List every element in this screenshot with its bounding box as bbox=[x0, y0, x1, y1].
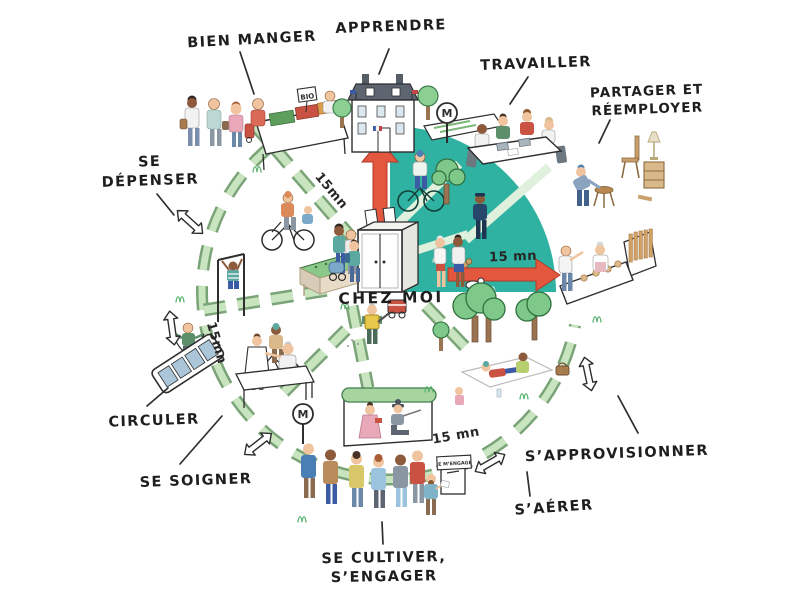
label-se-depenser-line2: DÉPENSER bbox=[101, 170, 199, 192]
label-se-cultiver-line2: S’ENGAGER bbox=[322, 567, 447, 588]
grass-tuft bbox=[176, 297, 184, 302]
pointer-travailler bbox=[510, 77, 528, 104]
grass-tuft bbox=[253, 167, 261, 172]
audience-crowd bbox=[301, 444, 425, 509]
metro-sign-letter: M bbox=[442, 107, 453, 120]
pointer-circuler bbox=[147, 388, 168, 406]
label-se-depenser: SE DÉPENSER bbox=[101, 151, 200, 192]
double-arrow bbox=[173, 205, 208, 238]
furniture-repair-vignette bbox=[572, 132, 664, 208]
bakery-stall-vignette bbox=[559, 229, 656, 304]
metro-sign-letter: M bbox=[298, 408, 309, 421]
double-arrow bbox=[163, 310, 182, 346]
pointer-se-depenser bbox=[157, 194, 174, 215]
grass-tuft bbox=[298, 517, 306, 522]
pointer-bien-manger bbox=[240, 52, 254, 94]
grass-tuft bbox=[520, 394, 528, 399]
street-stage-vignette bbox=[342, 388, 436, 446]
label-circuler: CIRCULER bbox=[108, 411, 200, 430]
pointer-apprendre bbox=[379, 49, 389, 74]
label-partager-reemployer: PARTAGER ET RÉEMPLOYER bbox=[590, 81, 705, 120]
ballot-sign: JE M’ENGAGE bbox=[435, 455, 472, 470]
bio-sign: BIO bbox=[297, 87, 317, 102]
pointer-s-approvisionner bbox=[618, 396, 638, 433]
pointer-se-cultiver bbox=[382, 522, 383, 544]
pointer-partager bbox=[599, 120, 610, 143]
cargo-bike-vignette bbox=[262, 191, 314, 250]
travel-time-east: 15 mn bbox=[489, 249, 537, 266]
label-se-cultiver-line1: SE CULTIVER, bbox=[321, 548, 446, 569]
double-arrow bbox=[578, 356, 599, 392]
label-se-cultiver-s-engager: SE CULTIVER, S’ENGAGER bbox=[321, 548, 446, 588]
pointer-s-aerer bbox=[527, 472, 530, 496]
label-chez-moi: CHEZ MOI bbox=[338, 288, 443, 308]
ballot-box-vignette: JE M’ENGAGE bbox=[424, 455, 472, 515]
grass-tuft bbox=[593, 317, 601, 322]
